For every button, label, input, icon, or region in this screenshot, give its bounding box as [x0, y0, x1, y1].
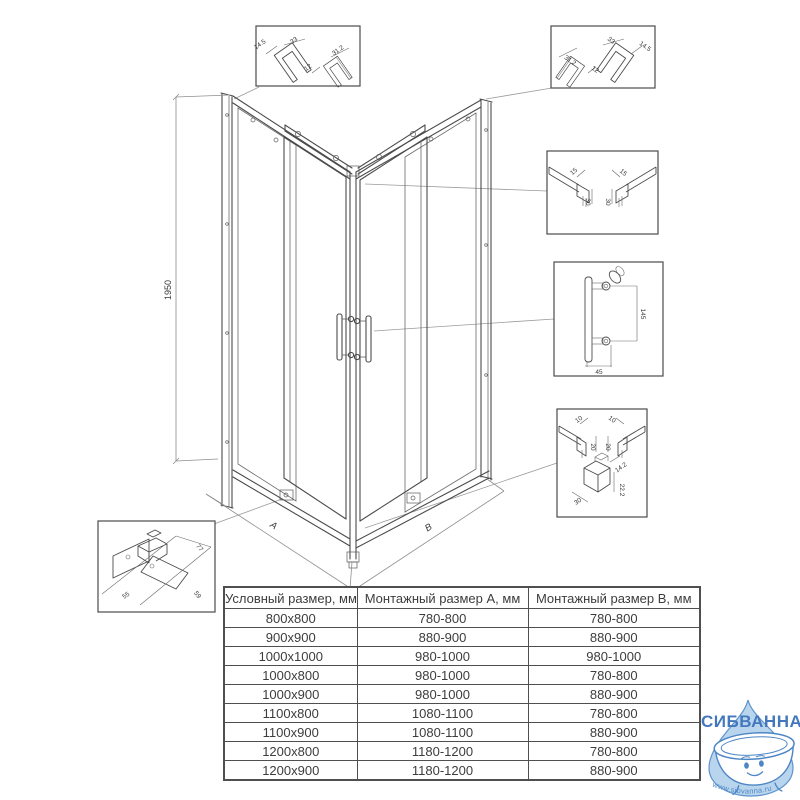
left-wall-profile	[221, 93, 233, 508]
callout-bottom-rail: 10 10 20 20 14.2 22.2 30	[557, 409, 647, 517]
dim-label: 45	[595, 369, 603, 376]
right-wall-profile	[480, 99, 492, 480]
bottom-roller-bracket	[407, 493, 420, 503]
top-rails	[233, 96, 481, 179]
mount-size-b: 780-800	[528, 742, 700, 761]
mount-size-b: 880-900	[528, 628, 700, 647]
table-row: 1000x1000 980-1000 980-1000	[224, 647, 700, 666]
table-row: 1100x900 1080-1100 880-900	[224, 723, 700, 742]
callout-top-left: 14.5 33 12 31.2	[253, 26, 360, 87]
door-tracks	[285, 125, 425, 174]
table-row: 1000x900 980-1000 880-900	[224, 685, 700, 704]
nominal-size: 1100x900	[224, 723, 357, 742]
dim-label: 22.2	[618, 484, 625, 497]
mount-size-a: 1080-1100	[357, 704, 528, 723]
mount-size-a: 1180-1200	[357, 742, 528, 761]
mount-size-a: 1180-1200	[357, 761, 528, 781]
mount-size-b: 780-800	[528, 666, 700, 685]
door-handles	[337, 314, 371, 362]
dim-label: 30	[584, 198, 591, 206]
mount-size-b: 780-800	[528, 609, 700, 628]
mount-size-a: 980-1000	[357, 647, 528, 666]
table-row: 900x900 880-900 880-900	[224, 628, 700, 647]
table-row: 1000x800 980-1000 780-800	[224, 666, 700, 685]
shower-enclosure-spec-sheet: 1950 A B	[0, 0, 800, 800]
dim-label: 30	[604, 198, 611, 206]
dim-a-label: A	[267, 519, 279, 532]
mount-size-b: 780-800	[528, 704, 700, 723]
brand-name: СИБВАННА	[701, 712, 800, 731]
table-row: 800x800 780-800 780-800	[224, 609, 700, 628]
mount-size-b: 880-900	[528, 685, 700, 704]
mount-size-b: 880-900	[528, 761, 700, 781]
mount-size-a: 980-1000	[357, 685, 528, 704]
header-mount-size-a: Монтажный размер A, мм	[357, 587, 528, 609]
mount-size-a: 880-900	[357, 628, 528, 647]
nominal-size: 1100x800	[224, 704, 357, 723]
callout-handle: 145 45	[554, 262, 663, 376]
nominal-size: 1200x800	[224, 742, 357, 761]
nominal-size: 900x900	[224, 628, 357, 647]
mount-size-b: 980-1000	[528, 647, 700, 666]
table-row: 1200x800 1180-1200 780-800	[224, 742, 700, 761]
nominal-size: 1200x900	[224, 761, 357, 781]
table-row: 1200x900 1180-1200 880-900	[224, 761, 700, 781]
nominal-size: 1000x900	[224, 685, 357, 704]
nominal-size: 800x800	[224, 609, 357, 628]
leader-lines	[214, 87, 557, 528]
corner-post	[347, 166, 359, 568]
callout-roller: 77 55 59	[98, 521, 215, 612]
dimension-b: B	[357, 479, 504, 588]
mount-size-a: 780-800	[357, 609, 528, 628]
nominal-size: 1000x1000	[224, 647, 357, 666]
dim-label: 20	[604, 443, 611, 451]
dimension-height: 1950	[163, 94, 230, 464]
nominal-size: 1000x800	[224, 666, 357, 685]
dim-label: 145	[639, 309, 646, 320]
fixed-glass-panels	[238, 108, 476, 512]
table-row: 1100x800 1080-1100 780-800	[224, 704, 700, 723]
dim-b-label: B	[423, 521, 435, 534]
mount-size-b: 880-900	[528, 723, 700, 742]
callout-wall-profile: 15 15 30 30	[547, 151, 658, 234]
height-dim-label: 1950	[163, 280, 173, 300]
main-drawing: 1950 A B	[163, 93, 504, 589]
dim-label: 20	[589, 443, 596, 451]
callout-top-right: 31.2 12 33 14.5	[551, 26, 655, 88]
mount-size-a: 980-1000	[357, 666, 528, 685]
size-table: Условный размер, мм Монтажный размер A, …	[223, 586, 701, 781]
header-mount-size-b: Монтажный размер B, мм	[528, 587, 700, 609]
table-header-row: Условный размер, мм Монтажный размер A, …	[224, 587, 700, 609]
mount-size-a: 1080-1100	[357, 723, 528, 742]
sibvanna-logo: СИБВАННА www.sibvanna.ru	[693, 688, 800, 800]
header-nominal-size: Условный размер, мм	[224, 587, 357, 609]
